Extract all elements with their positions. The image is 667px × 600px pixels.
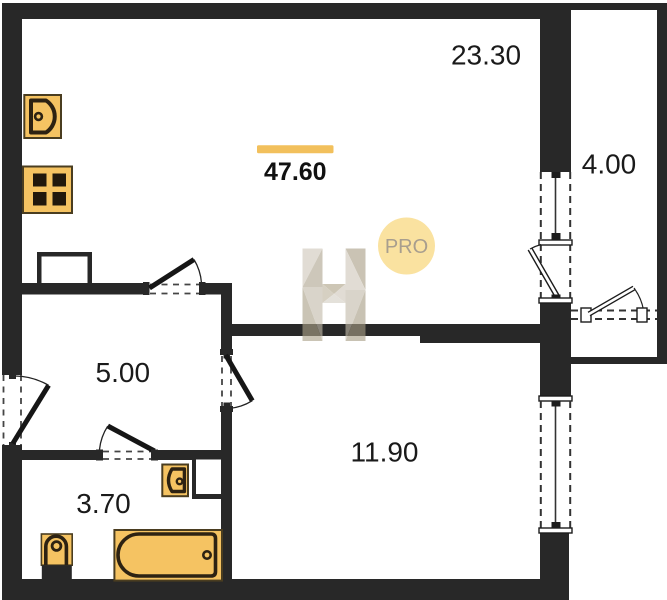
svg-text:3.70: 3.70: [76, 488, 131, 519]
svg-text:4.00: 4.00: [582, 149, 637, 180]
svg-text:5.00: 5.00: [96, 357, 151, 388]
svg-text:PRO: PRO: [385, 236, 428, 258]
svg-text:47.60: 47.60: [264, 158, 327, 186]
svg-text:11.90: 11.90: [351, 436, 419, 467]
svg-text:23.30: 23.30: [451, 40, 521, 71]
